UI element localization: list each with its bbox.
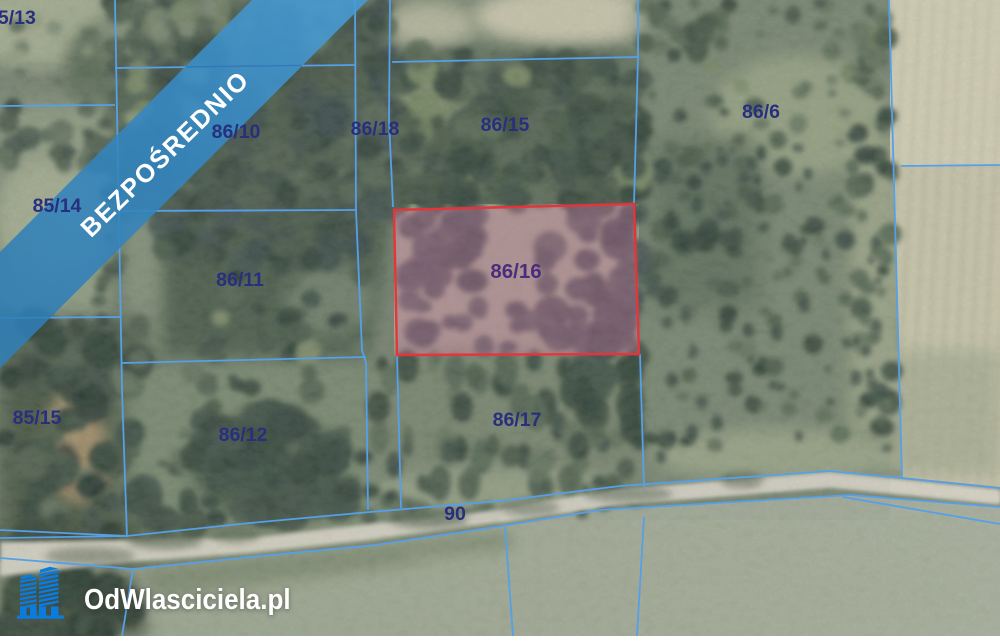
svg-text:86/12: 86/12	[219, 424, 268, 446]
svg-text:86/18: 86/18	[351, 118, 400, 140]
svg-text:85/14: 85/14	[33, 195, 82, 217]
svg-text:86/6: 86/6	[742, 101, 780, 123]
svg-text:90: 90	[444, 503, 466, 525]
svg-text:OdWlasciciela.pl: OdWlasciciela.pl	[84, 583, 291, 616]
svg-text:86/11: 86/11	[216, 269, 264, 291]
svg-text:86/17: 86/17	[493, 409, 542, 431]
svg-text:86/10: 86/10	[212, 121, 261, 143]
svg-text:86/15: 86/15	[481, 114, 530, 136]
svg-text:85/15: 85/15	[13, 407, 62, 429]
svg-text:85/13: 85/13	[0, 7, 36, 29]
svg-text:86/16: 86/16	[490, 260, 541, 283]
